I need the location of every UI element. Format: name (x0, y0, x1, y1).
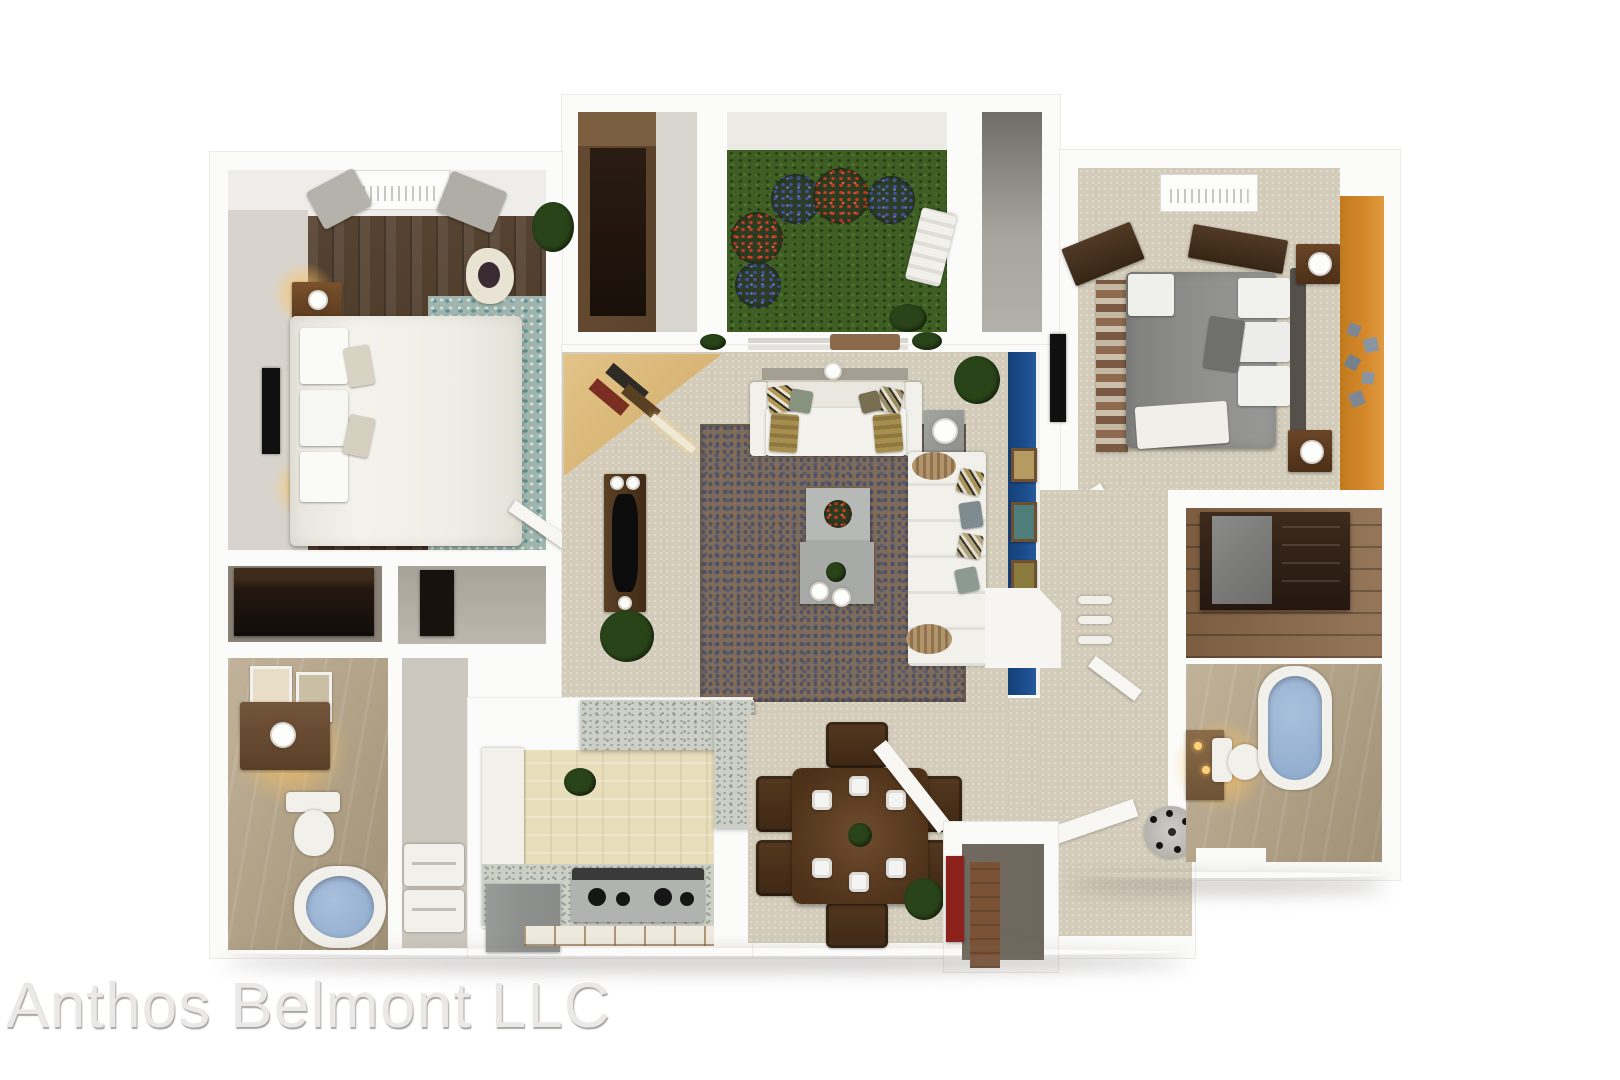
room-master-bedroom (228, 170, 546, 550)
kitchen-tile-floor (524, 926, 714, 946)
room-patio (727, 112, 947, 332)
dining-floor-plant (904, 878, 944, 920)
hall-connector (1008, 698, 1040, 840)
red-cabinet (946, 856, 964, 942)
bed2-accent-pillow (1203, 316, 1246, 373)
room-walk-in-wardrobe (578, 112, 697, 332)
master-pillow-2 (300, 390, 348, 446)
bed2-pillow-3 (1238, 366, 1290, 406)
dining-chair-bottom (826, 902, 888, 948)
master-pillow-1 (300, 328, 348, 384)
room-master-closet (228, 566, 382, 642)
console-knob-2 (628, 478, 638, 488)
wall-flower-decal-5 (1348, 390, 1366, 408)
coat-hook-2 (1166, 810, 1173, 817)
sofa-arm-right (904, 382, 922, 456)
plant-behind-wall-2 (912, 332, 942, 350)
sofa-pillow-2 (788, 388, 813, 413)
bench-bedroom2-2 (1188, 224, 1288, 274)
coffee-table-plate-1 (812, 584, 827, 599)
plant-living-corner (954, 356, 1000, 404)
dining-plate-3 (812, 858, 832, 878)
lamp-bed2-2 (1302, 442, 1322, 462)
flower-bush-blue-2 (867, 176, 915, 224)
toilet-2-bowl (1228, 744, 1262, 780)
closet-dresser-dark (234, 568, 374, 636)
bed2-blanket-fold (1135, 401, 1230, 449)
red-flower-centerpiece (824, 500, 852, 528)
blue-wall-frame-1 (1011, 448, 1037, 482)
wall-flower-decal-3 (1344, 354, 1362, 372)
hall-shelf-2 (1078, 616, 1112, 624)
wall-flower-decal-2 (1363, 337, 1380, 354)
dining-plate-6 (849, 872, 869, 892)
patio-table-through-glass (830, 334, 900, 350)
dining-plate-5 (849, 776, 869, 796)
console-knob-3 (620, 598, 630, 608)
linen-closet (985, 588, 1061, 668)
bath2-candle-1 (1194, 742, 1202, 750)
room-bathroom-1 (228, 658, 388, 950)
room-living (562, 352, 1008, 715)
master-pillow-3 (300, 452, 348, 502)
dining-plate-2 (886, 790, 906, 810)
bath2-door-gap (1196, 848, 1266, 862)
watermark-text: Anthos Belmont LLC (6, 968, 611, 1042)
room-utility-closet (398, 566, 546, 644)
bed2-sheet-fold (1128, 274, 1174, 316)
flower-bush-red-2 (731, 212, 783, 264)
blue-wall-frame-2 (1011, 502, 1037, 542)
wall-flower-decal-4 (1361, 371, 1375, 385)
plant-by-console (600, 610, 654, 662)
dryer-door-line (412, 908, 456, 911)
desk-lamp-bar (650, 413, 696, 453)
floor-plan-image: Anthos Belmont LLC (0, 0, 1620, 1080)
room-walk-in-closet-2 (1186, 508, 1382, 658)
closet2-drawer-lines (1282, 524, 1340, 598)
chaise-pillow-4 (954, 566, 981, 594)
wall-flower-decal-1 (1346, 322, 1361, 337)
tv-bedroom-2 (1050, 334, 1066, 422)
coffee-table-plant (826, 562, 846, 582)
bathtub-1-water (306, 876, 374, 938)
striped-runner-rug (1096, 280, 1128, 452)
tv-master (262, 368, 280, 454)
hall-shelf-3 (1078, 636, 1112, 644)
toilet-1-tank (286, 792, 340, 812)
dining-plate-1 (812, 790, 832, 810)
bathtub-2-water (1268, 676, 1322, 780)
utility-appliance (420, 570, 454, 636)
closet2-mirror (1212, 516, 1272, 604)
room-storage (982, 112, 1042, 332)
chaise-pillow-3 (956, 532, 984, 560)
plant-behind-wall-1 (700, 334, 726, 350)
stove-burner-2 (616, 892, 630, 906)
room-bedroom-2 (1078, 168, 1340, 490)
bed2-headboard (1290, 268, 1306, 452)
console-knob-1 (612, 478, 622, 488)
flower-bush-blue-3 (735, 262, 781, 308)
lamp-master-1 (310, 292, 326, 308)
accent-wall-orange (1340, 196, 1384, 490)
dryer (404, 890, 464, 932)
patio-plant (889, 304, 927, 332)
basket-2 (906, 624, 952, 654)
side-table-lamp (934, 420, 956, 442)
washer (404, 844, 464, 886)
lamp-bed2-1 (1310, 254, 1330, 274)
flower-bush-red-1 (813, 168, 869, 224)
coat-hook-6 (1156, 842, 1163, 849)
accent-chair-cushion (478, 262, 500, 288)
kitchen-backsplash (524, 750, 714, 872)
kitchen-plant (564, 768, 596, 796)
stove-burner-3 (654, 888, 672, 906)
basket-1 (912, 452, 956, 480)
bed2-pillow-1 (1238, 278, 1290, 318)
room-laundry-hall (402, 658, 468, 948)
sofa-cushion-gold-2 (872, 413, 903, 453)
coffee-table-plate-2 (834, 590, 849, 605)
sofa-cushion-gold-1 (769, 413, 800, 453)
hall-shelf-1 (1078, 596, 1112, 604)
dining-plate-4 (886, 858, 906, 878)
chaise-pillow-2 (958, 501, 983, 530)
room-kitchen (468, 698, 752, 958)
corner-desk (564, 354, 722, 476)
wardrobe-interior (590, 148, 646, 316)
tv-living-flat (612, 494, 638, 592)
washer-door-line (412, 862, 456, 865)
toilet-1-bowl (294, 810, 334, 856)
bed2-pillow-2 (1238, 322, 1290, 362)
room-bathroom-2 (1186, 664, 1382, 862)
wardrobe-top-shelf (578, 112, 656, 146)
plant-master-corner (532, 202, 574, 252)
bath1-sink (272, 724, 294, 746)
dining-centerpiece (848, 823, 872, 847)
coat-hook-center (1168, 828, 1176, 836)
dining-chair-left-2 (756, 840, 796, 896)
bath2-candle-2 (1202, 766, 1210, 774)
coat-hook-5 (1174, 846, 1181, 853)
plan-shadow-right (1075, 872, 1380, 878)
dining-chair-left-1 (756, 776, 796, 832)
stove-burner-1 (588, 888, 606, 906)
coat-hook-1 (1150, 816, 1157, 823)
sofa-table-lamp (826, 364, 840, 378)
stove-burner-4 (680, 892, 694, 906)
hvac-unit-bedroom2 (1160, 174, 1258, 212)
plan-shadow-bottom (230, 948, 1180, 956)
